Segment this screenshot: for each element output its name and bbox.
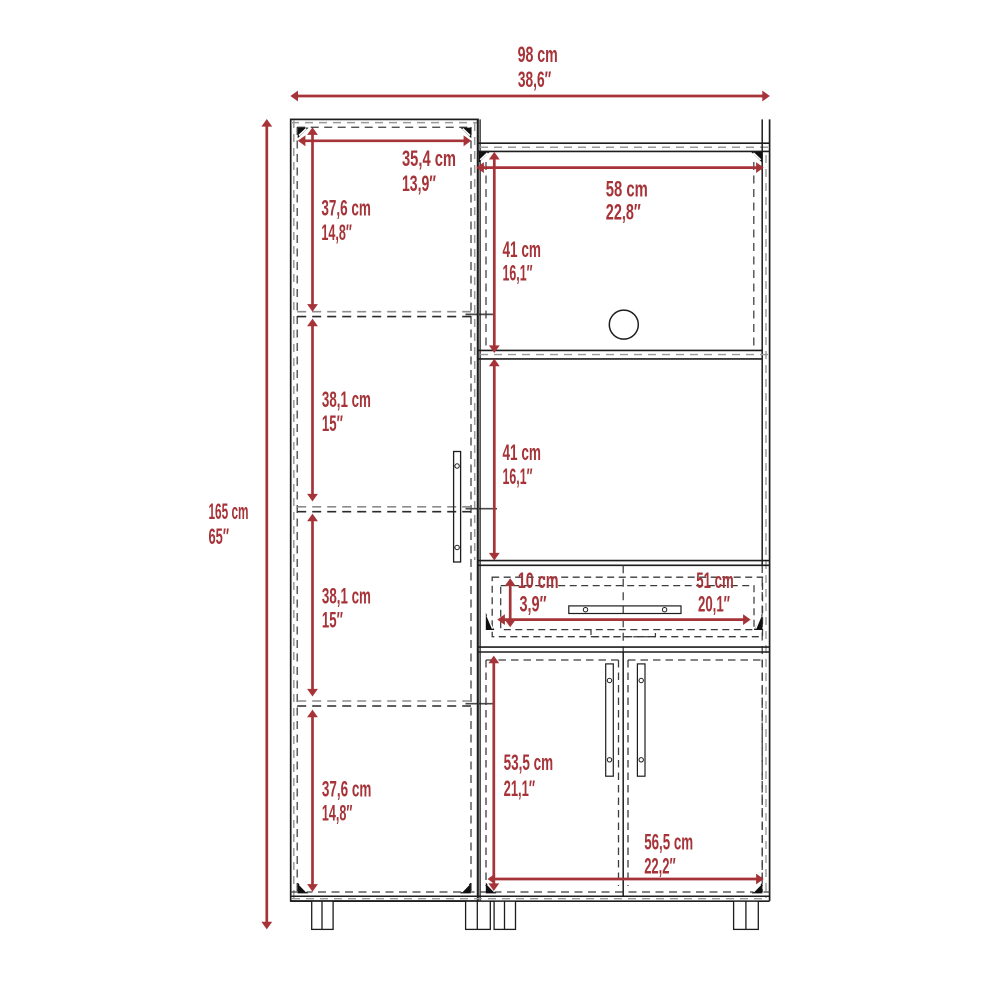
svg-text:38,6″: 38,6″: [518, 67, 551, 92]
svg-text:41 cm: 41 cm: [503, 237, 542, 262]
svg-text:16,1″: 16,1″: [503, 464, 533, 489]
svg-text:22,8″: 22,8″: [606, 200, 641, 225]
svg-text:38,1 cm: 38,1 cm: [322, 584, 371, 609]
svg-text:37,6 cm: 37,6 cm: [322, 777, 372, 802]
svg-text:22,2″: 22,2″: [644, 854, 676, 879]
svg-text:13,9″: 13,9″: [402, 171, 436, 196]
svg-text:16,1″: 16,1″: [503, 261, 533, 286]
svg-text:15″: 15″: [322, 411, 343, 436]
svg-text:37,6 cm: 37,6 cm: [321, 195, 371, 220]
svg-text:3,9″: 3,9″: [520, 592, 547, 617]
svg-text:56,5 cm: 56,5 cm: [644, 830, 693, 855]
svg-text:165 cm: 165 cm: [209, 499, 249, 524]
svg-text:38,1 cm: 38,1 cm: [322, 387, 371, 412]
svg-text:65″: 65″: [209, 524, 230, 549]
svg-text:15″: 15″: [322, 608, 343, 633]
svg-text:10 cm: 10 cm: [518, 568, 559, 593]
svg-text:58 cm: 58 cm: [606, 176, 648, 201]
svg-text:21,1″: 21,1″: [504, 776, 536, 801]
svg-text:53,5 cm: 53,5 cm: [504, 750, 553, 775]
svg-text:20,1″: 20,1″: [698, 592, 730, 617]
svg-text:51 cm: 51 cm: [696, 568, 733, 593]
svg-text:14,8″: 14,8″: [321, 220, 352, 245]
svg-text:14,8″: 14,8″: [322, 801, 353, 826]
svg-text:35,4 cm: 35,4 cm: [402, 146, 456, 171]
svg-text:41 cm: 41 cm: [503, 440, 542, 465]
svg-text:98 cm: 98 cm: [518, 42, 558, 67]
